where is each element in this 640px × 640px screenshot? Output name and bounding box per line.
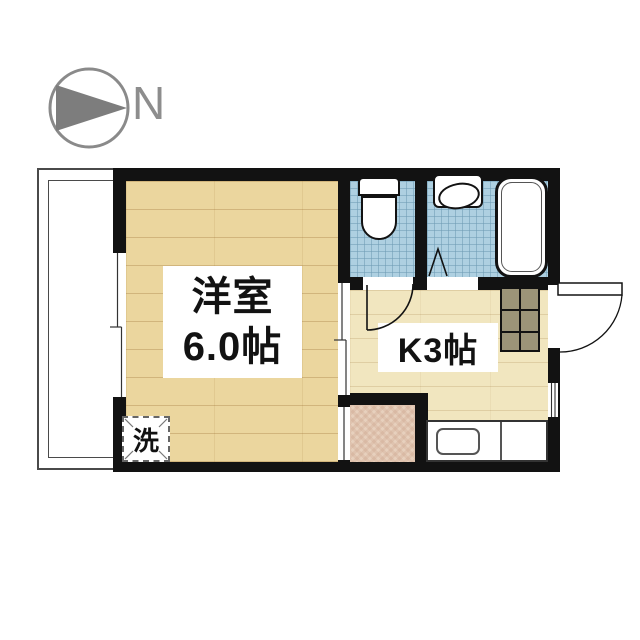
western-room-name: 洋室 [192, 272, 274, 322]
floor-plan-canvas: N 洗 洋室 6.0帖 K3帖 [0, 0, 640, 640]
balcony-window [113, 253, 126, 397]
western-room-label: 洋室 6.0帖 [163, 266, 302, 378]
bathtub-rim [501, 182, 542, 272]
kitchen-window [548, 383, 558, 417]
counter-divider-line [500, 422, 502, 460]
compass-north-label: N [132, 80, 165, 126]
toilet-bowl-icon [361, 196, 397, 240]
entrance-tile [350, 405, 415, 462]
room-kitchen-sliding-door [338, 283, 350, 395]
kitchen-sink-icon [436, 428, 480, 455]
kitchen-counter [426, 420, 548, 462]
western-room-size: 6.0帖 [183, 322, 283, 372]
kitchen-label: K3帖 [378, 323, 498, 372]
toilet-tank-icon [358, 177, 400, 196]
shoe-cabinet-grid [500, 287, 540, 352]
entrance-side-door [338, 407, 350, 460]
bath-door-opening [427, 277, 478, 290]
balcony-railing [48, 180, 115, 458]
washing-machine-space: 洗 [122, 416, 170, 462]
entrance-door-icon [558, 283, 622, 352]
bathtub-icon [495, 176, 548, 278]
north-compass-icon [42, 62, 137, 157]
toilet-door-opening [363, 277, 413, 290]
entrance-door-opening [548, 285, 560, 348]
